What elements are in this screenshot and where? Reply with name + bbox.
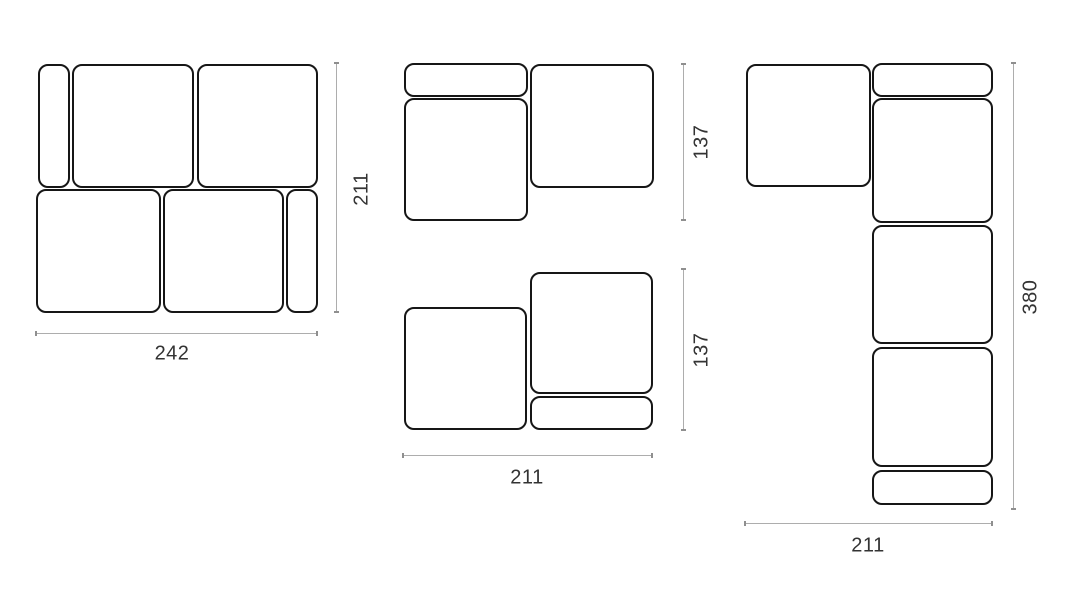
width-dimension-label: 242 [155, 343, 190, 366]
height-dimension-line [683, 63, 684, 221]
height-dimension-label: 137 [691, 333, 714, 368]
width-dimension-label: 211 [851, 535, 884, 558]
seat-module [72, 64, 194, 188]
armrest-module [286, 189, 318, 313]
seat-module [872, 347, 993, 467]
height-dimension-line [683, 268, 684, 431]
seat-module [197, 64, 318, 188]
seat-module [36, 189, 161, 313]
seat-module [872, 98, 993, 223]
backrest-module [872, 63, 993, 97]
chaise-seat-module [404, 98, 528, 221]
height-value: 211 [351, 172, 373, 205]
width-value: 211 [510, 467, 543, 489]
height-dimension-label: 211 [351, 172, 374, 205]
height-value: 137 [691, 333, 713, 368]
seat-module [872, 225, 993, 344]
armrest-module [38, 64, 70, 188]
chaise-seat-module [746, 64, 871, 187]
height-dimension-label: 380 [1020, 280, 1043, 315]
width-dimension-line [402, 455, 653, 456]
seat-module [163, 189, 284, 313]
height-value: 380 [1020, 280, 1042, 315]
height-dimension-line [336, 62, 337, 313]
width-value: 242 [155, 343, 190, 365]
sofa-dimension-diagram: 211 242 137 137 211 [0, 0, 1067, 600]
backrest-module [404, 63, 528, 97]
corner-seat-module [530, 64, 654, 188]
seat-module [404, 307, 527, 430]
height-value: 137 [691, 125, 713, 160]
backrest-module [530, 396, 653, 430]
width-dimension-line [35, 333, 318, 334]
height-dimension-line [1013, 62, 1014, 510]
height-dimension-label: 137 [691, 125, 714, 160]
width-dimension-line [744, 523, 993, 524]
corner-seat-module [530, 272, 653, 394]
width-dimension-label: 211 [510, 467, 543, 490]
backrest-module [872, 470, 993, 505]
width-value: 211 [851, 535, 884, 557]
